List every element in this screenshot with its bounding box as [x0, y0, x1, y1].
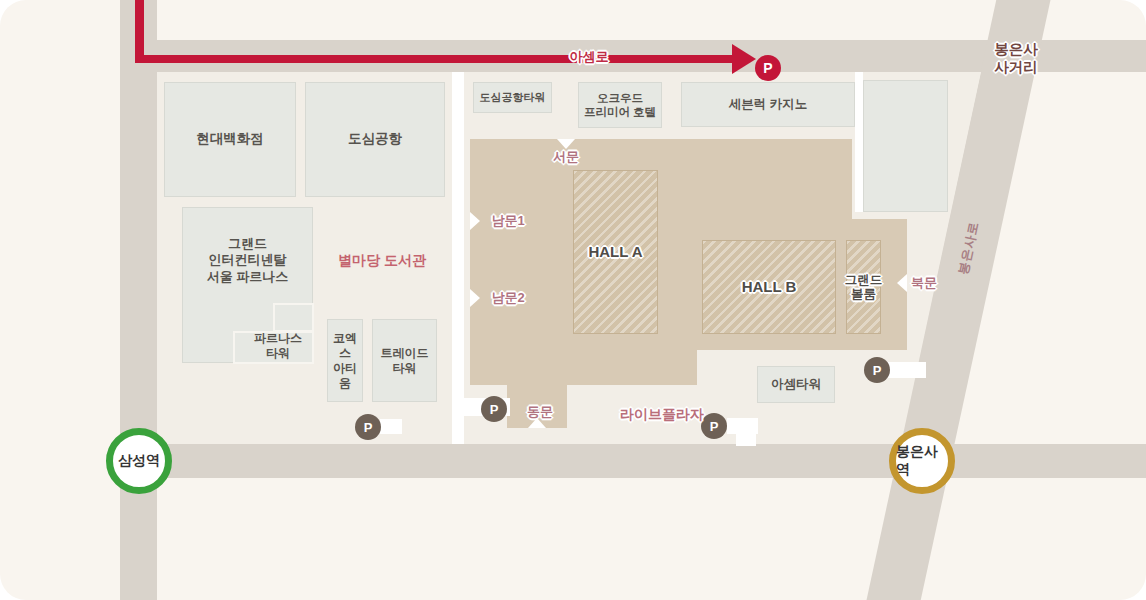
- north-gate-notch-icon: [897, 274, 907, 292]
- building-label: 그랜드: [228, 236, 267, 252]
- building-label: 트레이드: [381, 346, 429, 361]
- byeolmadang-library-label: 별마당 도서관: [338, 252, 426, 270]
- grand-ballroom: 그랜드볼룸: [846, 240, 881, 334]
- grand-ballroom-label: 그랜드: [845, 273, 883, 287]
- building-label: 프리미어 호텔: [584, 105, 656, 119]
- street-gap-northeast: [855, 72, 863, 212]
- hall-a-label: HALL A: [588, 243, 642, 260]
- building-city-airport-tower: 도심공항타워: [473, 82, 552, 113]
- street-gap-vertical: [452, 72, 464, 444]
- south-gate1-label: 남문1: [491, 212, 524, 230]
- building-hyundai-dept: 현대백화점: [164, 82, 296, 197]
- east-gate-label: 동문: [527, 403, 553, 421]
- parking-driveway: [727, 418, 758, 434]
- building-asem-tower: 아셈타워: [757, 366, 835, 403]
- building-label: 코엑스: [328, 331, 362, 361]
- parking-marker: P: [864, 357, 890, 383]
- south-gate2-notch-icon: [470, 289, 480, 307]
- parking-marker-red: P: [755, 55, 781, 81]
- hall-a: HALL A: [573, 170, 658, 334]
- route-line-vertical: [135, 0, 144, 63]
- parking-marker: P: [355, 414, 381, 440]
- building-label: 세븐럭 카지노: [729, 97, 807, 113]
- station-label: 봉은사역: [896, 443, 948, 479]
- building-label: 아셈타워: [771, 377, 821, 393]
- route-arrowhead-icon: [732, 44, 756, 74]
- parking-marker: P: [701, 413, 727, 439]
- south-gate1-notch-icon: [470, 212, 480, 230]
- building-trade-tower: 트레이드타워: [372, 319, 437, 402]
- building-oakwood-hotel: 오크우드프리미어 호텔: [578, 82, 662, 128]
- building-label: 타워: [393, 361, 417, 376]
- asem-ro-road-label: 아셈로: [570, 48, 609, 66]
- bongeunsa-intersection-label: 봉은사사거리: [994, 40, 1038, 76]
- building-seven-luck-casino: 세븐럭 카지노: [681, 82, 855, 127]
- road-bottom: [156, 444, 1146, 478]
- parnas-tower-outline-upper: [273, 303, 314, 332]
- building-label: 도심공항: [348, 131, 402, 148]
- building-city-airport: 도심공항: [305, 82, 445, 197]
- building-label: 오크우드: [597, 91, 643, 105]
- parnas-tower-label: 파르나스타워: [254, 331, 302, 361]
- live-plaza-label: 라이브플라자: [620, 406, 704, 424]
- building-label: 인터컨티넨탈: [209, 252, 287, 268]
- west-gate-label: 서문: [553, 148, 579, 166]
- station-label: 삼성역: [118, 452, 160, 470]
- hall-b-label: HALL B: [742, 278, 797, 295]
- bongeunsa-station-badge: 봉은사역: [889, 428, 955, 494]
- building-label: 아티움: [328, 361, 362, 391]
- coex-area-map: 현대백화점 도심공항 도심공항타워 오크우드프리미어 호텔 세븐럭 카지노 그랜…: [0, 0, 1146, 600]
- route-line-horizontal: [135, 55, 732, 63]
- building-unlabeled: [863, 80, 948, 212]
- road-vertical-left: [120, 0, 157, 600]
- hall-b: HALL B: [702, 240, 836, 334]
- building-coex-artium: 코엑스아티움: [327, 319, 363, 402]
- north-gate-label: 북문: [911, 274, 937, 292]
- building-label: 서울 파르나스: [207, 269, 289, 285]
- parking-driveway: [380, 419, 402, 434]
- building-label: 도심공항타워: [480, 91, 546, 105]
- parking-driveway: [736, 434, 756, 446]
- parking-marker: P: [481, 396, 507, 422]
- grand-ballroom-label: 볼룸: [851, 287, 876, 301]
- samseong-station-badge: 삼성역: [106, 428, 172, 494]
- building-label: 현대백화점: [196, 131, 264, 148]
- parking-driveway: [888, 362, 926, 378]
- south-gate2-label: 남문2: [491, 289, 524, 307]
